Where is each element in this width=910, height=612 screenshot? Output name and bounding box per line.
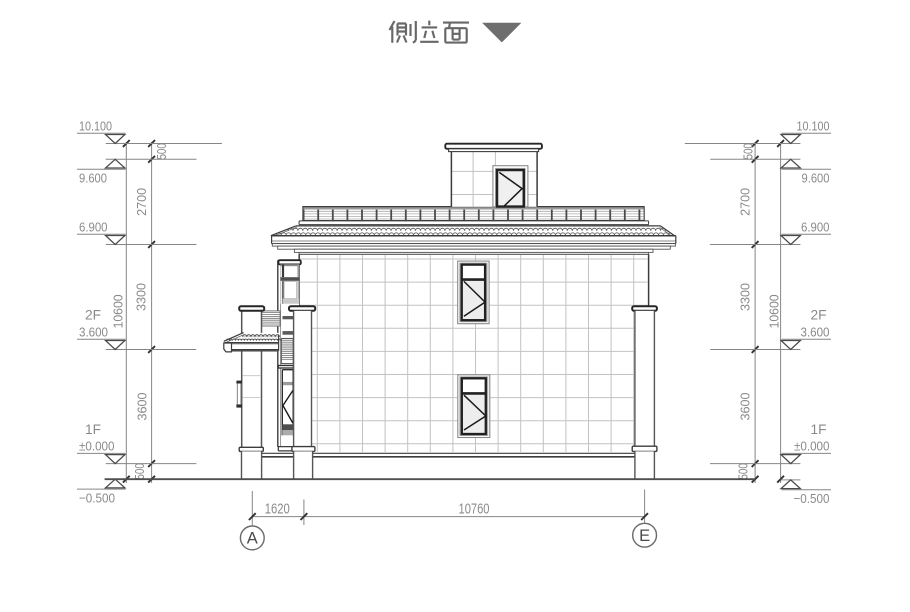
svg-text:10.100: 10.100 <box>79 118 112 133</box>
svg-text:E: E <box>639 527 650 545</box>
svg-text:−0.500: −0.500 <box>79 490 115 505</box>
svg-text:6.900: 6.900 <box>801 219 830 234</box>
svg-text:10600: 10600 <box>767 294 782 328</box>
svg-text:500: 500 <box>154 143 169 160</box>
svg-text:10.100: 10.100 <box>797 118 830 133</box>
svg-text:500: 500 <box>740 143 755 160</box>
svg-text:3.600: 3.600 <box>801 324 830 339</box>
svg-text:3300: 3300 <box>738 283 753 311</box>
svg-text:6.900: 6.900 <box>79 219 108 234</box>
svg-text:±0.000: ±0.000 <box>794 438 830 453</box>
svg-text:1F: 1F <box>811 421 827 437</box>
svg-text:3300: 3300 <box>134 283 149 311</box>
svg-text:3600: 3600 <box>135 393 150 421</box>
svg-text:2F: 2F <box>811 307 827 323</box>
svg-text:3.600: 3.600 <box>79 324 108 339</box>
svg-text:1620: 1620 <box>265 501 290 517</box>
svg-text:9.600: 9.600 <box>79 171 107 186</box>
svg-text:2700: 2700 <box>134 188 149 216</box>
svg-text:10760: 10760 <box>459 501 490 517</box>
svg-text:2700: 2700 <box>738 188 753 216</box>
svg-text:3600: 3600 <box>738 393 753 421</box>
svg-text:10600: 10600 <box>111 294 126 328</box>
svg-text:9.600: 9.600 <box>802 171 830 186</box>
svg-text:500: 500 <box>132 463 147 480</box>
svg-text:2F: 2F <box>85 307 101 323</box>
svg-text:A: A <box>247 530 258 548</box>
svg-text:−0.500: −0.500 <box>794 491 830 506</box>
svg-text:±0.000: ±0.000 <box>79 438 115 453</box>
svg-text:1F: 1F <box>85 421 101 437</box>
svg-text:500: 500 <box>736 463 751 480</box>
